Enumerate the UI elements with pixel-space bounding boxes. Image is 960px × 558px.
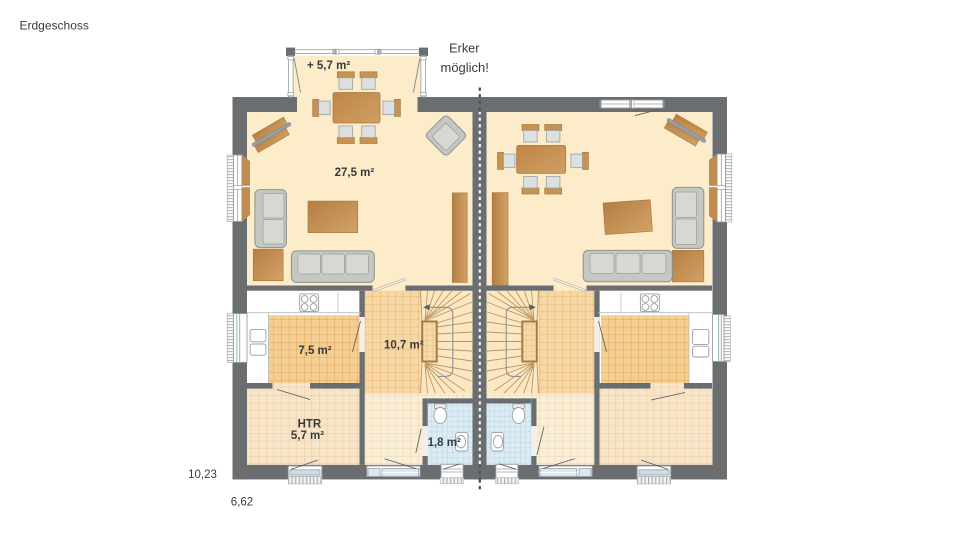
svg-text:10,7 m²: 10,7 m² <box>384 339 424 351</box>
svg-text:27,5 m²: 27,5 m² <box>335 167 375 179</box>
svg-text:7,5 m²: 7,5 m² <box>298 345 331 357</box>
svg-text:5,7 m²: 5,7 m² <box>291 430 324 442</box>
svg-text:10,23: 10,23 <box>188 469 217 481</box>
svg-text:Erdgeschoss: Erdgeschoss <box>20 19 89 33</box>
svg-text:+ 5,7 m²: + 5,7 m² <box>307 60 350 72</box>
svg-text:Erker: Erker <box>449 41 480 55</box>
svg-text:HTR: HTR <box>298 419 322 431</box>
svg-text:1,8 m²: 1,8 m² <box>428 437 461 449</box>
svg-text:6,62: 6,62 <box>231 496 253 508</box>
svg-text:möglich!: möglich! <box>440 60 488 75</box>
